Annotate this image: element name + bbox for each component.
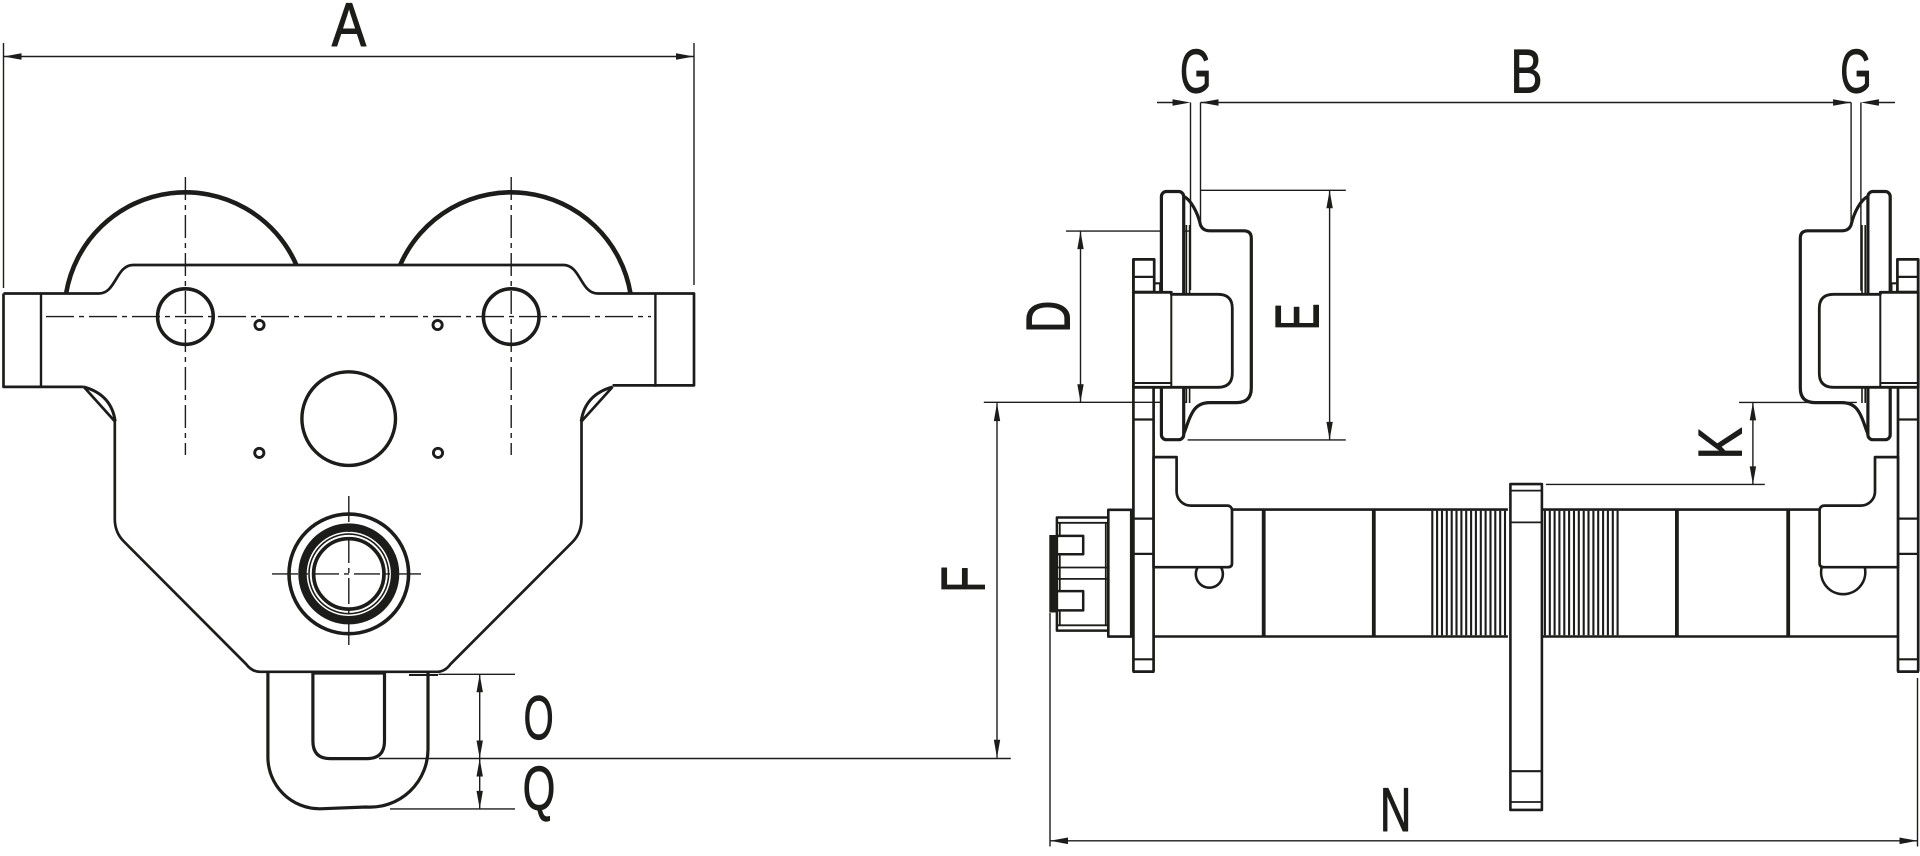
svg-text:K: K [1686,427,1755,459]
svg-text:Q: Q [523,754,556,823]
svg-text:O: O [524,684,554,753]
svg-text:F: F [929,566,998,593]
svg-text:D: D [1015,301,1084,333]
svg-text:N: N [1380,776,1412,845]
svg-text:G: G [1840,38,1872,107]
svg-text:A: A [332,0,367,60]
svg-text:B: B [1511,38,1543,107]
svg-text:G: G [1180,38,1212,107]
svg-text:E: E [1264,303,1333,330]
